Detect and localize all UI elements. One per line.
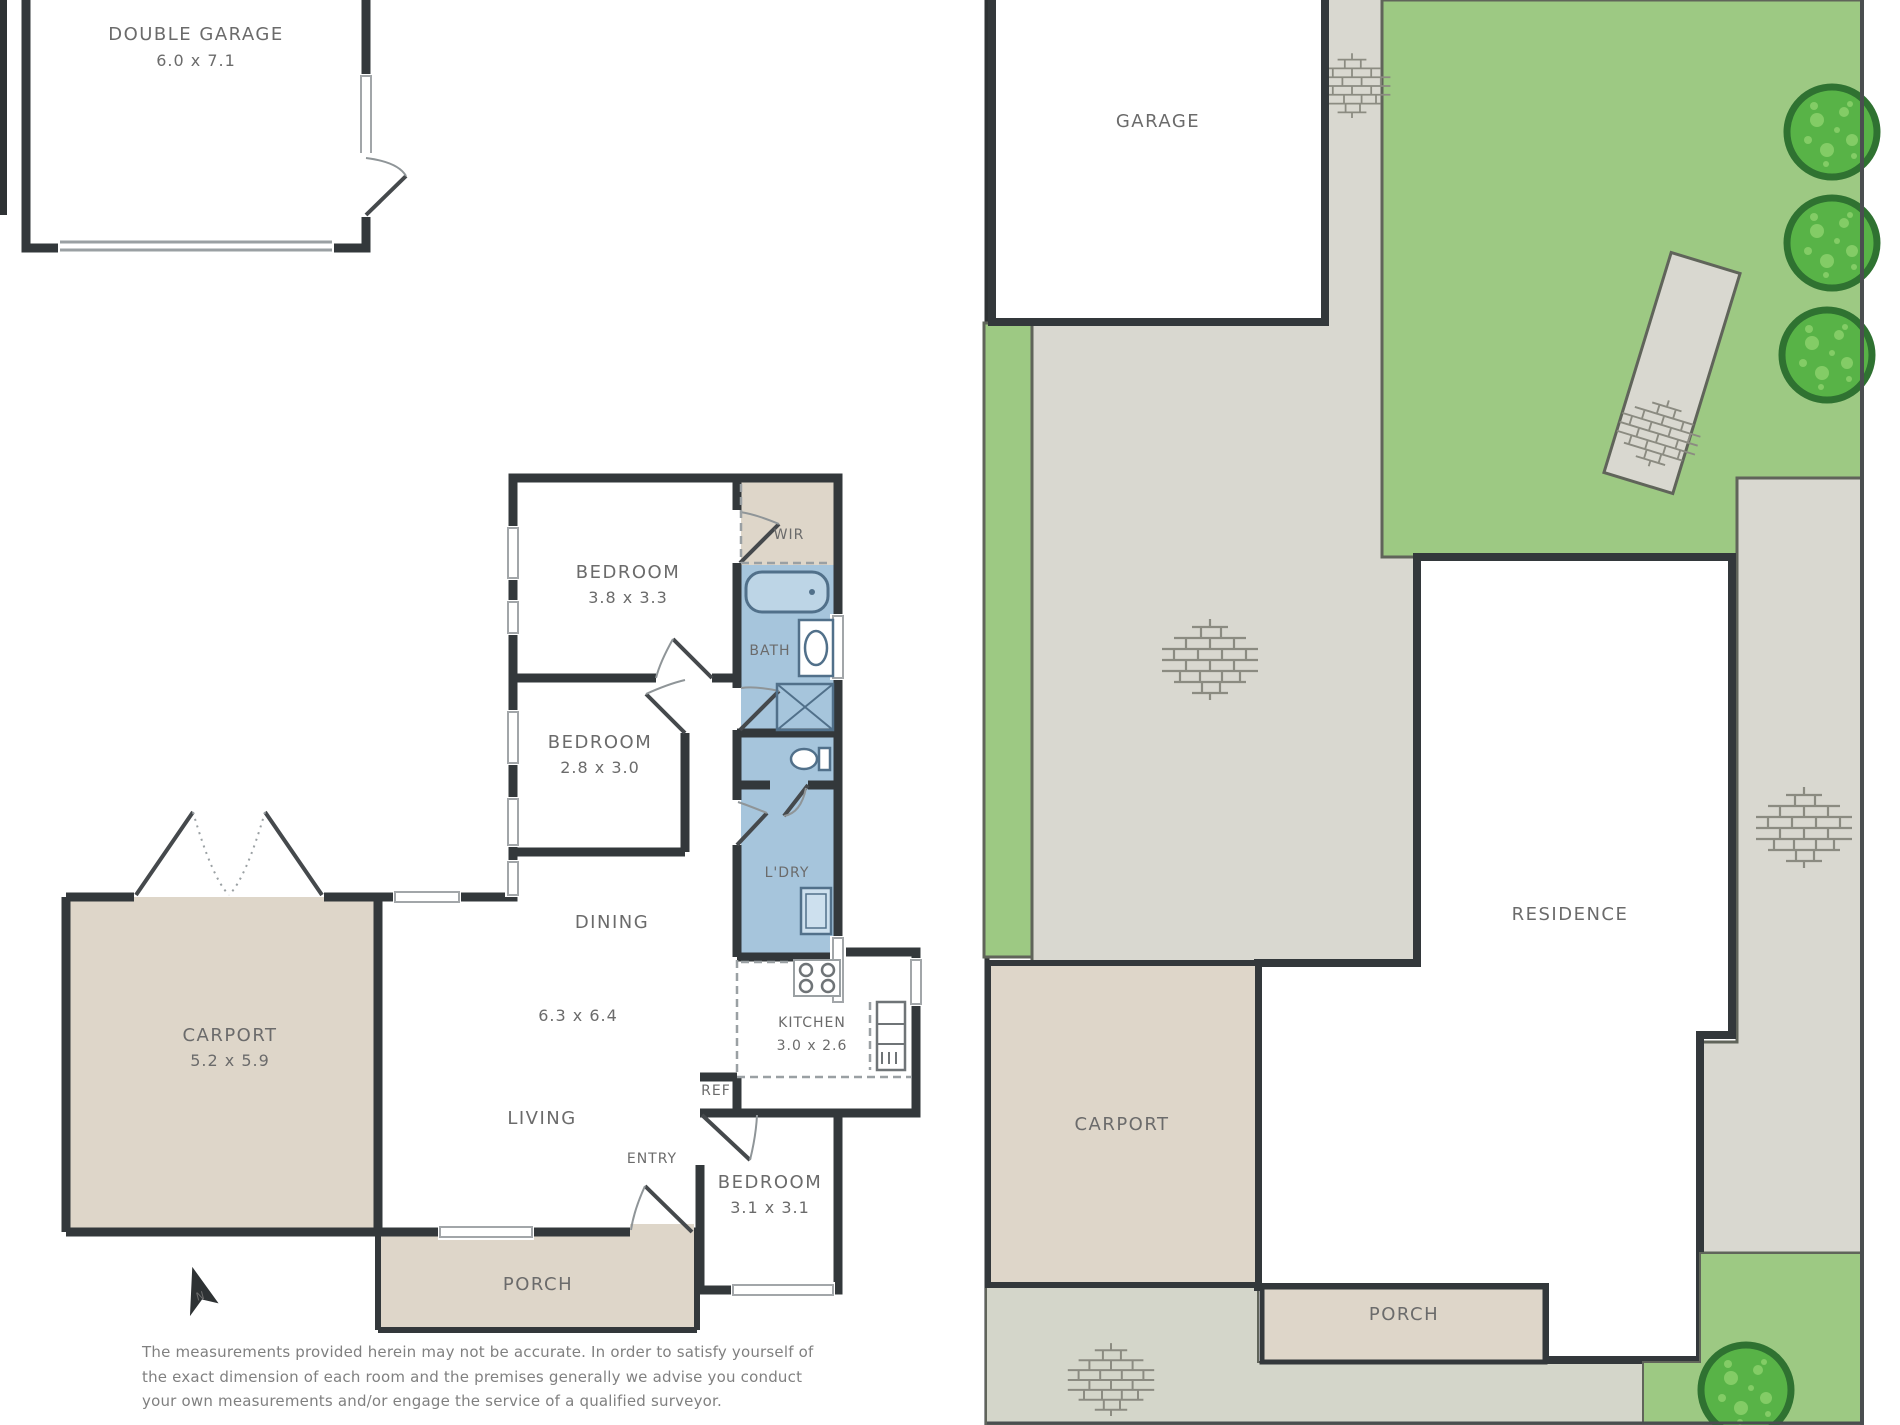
ref-label: REF [701,1083,731,1099]
living-dining-dims: 6.3 x 6.4 [538,1006,618,1025]
site-plan: GARAGE RESIDENCE CARPORT PORCH [984,0,1877,1425]
bedroom1-dims: 3.8 x 3.3 [588,588,668,607]
site-residence-label: RESIDENCE [1512,904,1629,925]
double-garage-label: DOUBLE GARAGE [108,24,284,45]
wir-fill [741,482,834,565]
wir-label: WIR [774,527,805,543]
disclaimer-line-2: the exact dimension of each room and the… [142,1368,802,1386]
floor-plan: DOUBLE GARAGE 6.0 x 7.1 [0,0,924,1410]
disclaimer-line-3: your own measurements and/or engage the … [142,1392,722,1410]
bedroom3-label: BEDROOM [718,1172,822,1193]
kitchen-dims: 3.0 x 2.6 [777,1038,848,1054]
bedroom1-label: BEDROOM [576,562,680,583]
floorplan-document: DOUBLE GARAGE 6.0 x 7.1 [0,0,1900,1425]
dining-label: DINING [575,912,649,933]
bedroom3-dims: 3.1 x 3.1 [730,1198,810,1217]
site-garage [992,0,1325,322]
side-garden-strip [984,323,1032,957]
room-double-garage: DOUBLE GARAGE 6.0 x 7.1 [26,0,406,256]
living-label: LIVING [507,1108,576,1129]
bedroom2-label: BEDROOM [548,732,652,753]
laundry-label: L'DRY [765,865,810,881]
site-garage-label: GARAGE [1116,111,1200,132]
site-porch-label: PORCH [1369,1304,1439,1325]
bathtub [746,572,828,612]
bath-label: BATH [749,643,790,659]
double-garage-dims: 6.0 x 7.1 [156,51,236,70]
site-carport-label: CARPORT [1074,1114,1169,1135]
floorplan-canvas: DOUBLE GARAGE 6.0 x 7.1 [0,0,1900,1425]
carport-dims: 5.2 x 5.9 [190,1051,270,1070]
page-edge-line [0,0,7,215]
bedroom2-dims: 2.8 x 3.0 [560,758,640,777]
kitchen-label: KITCHEN [778,1015,846,1031]
porch-label: PORCH [503,1274,573,1295]
north-arrow-icon: N [178,1263,220,1316]
carport-label: CARPORT [182,1025,277,1046]
entry-label: ENTRY [627,1151,677,1167]
toilet [791,749,817,769]
disclaimer-line-1: The measurements provided herein may not… [141,1343,814,1361]
